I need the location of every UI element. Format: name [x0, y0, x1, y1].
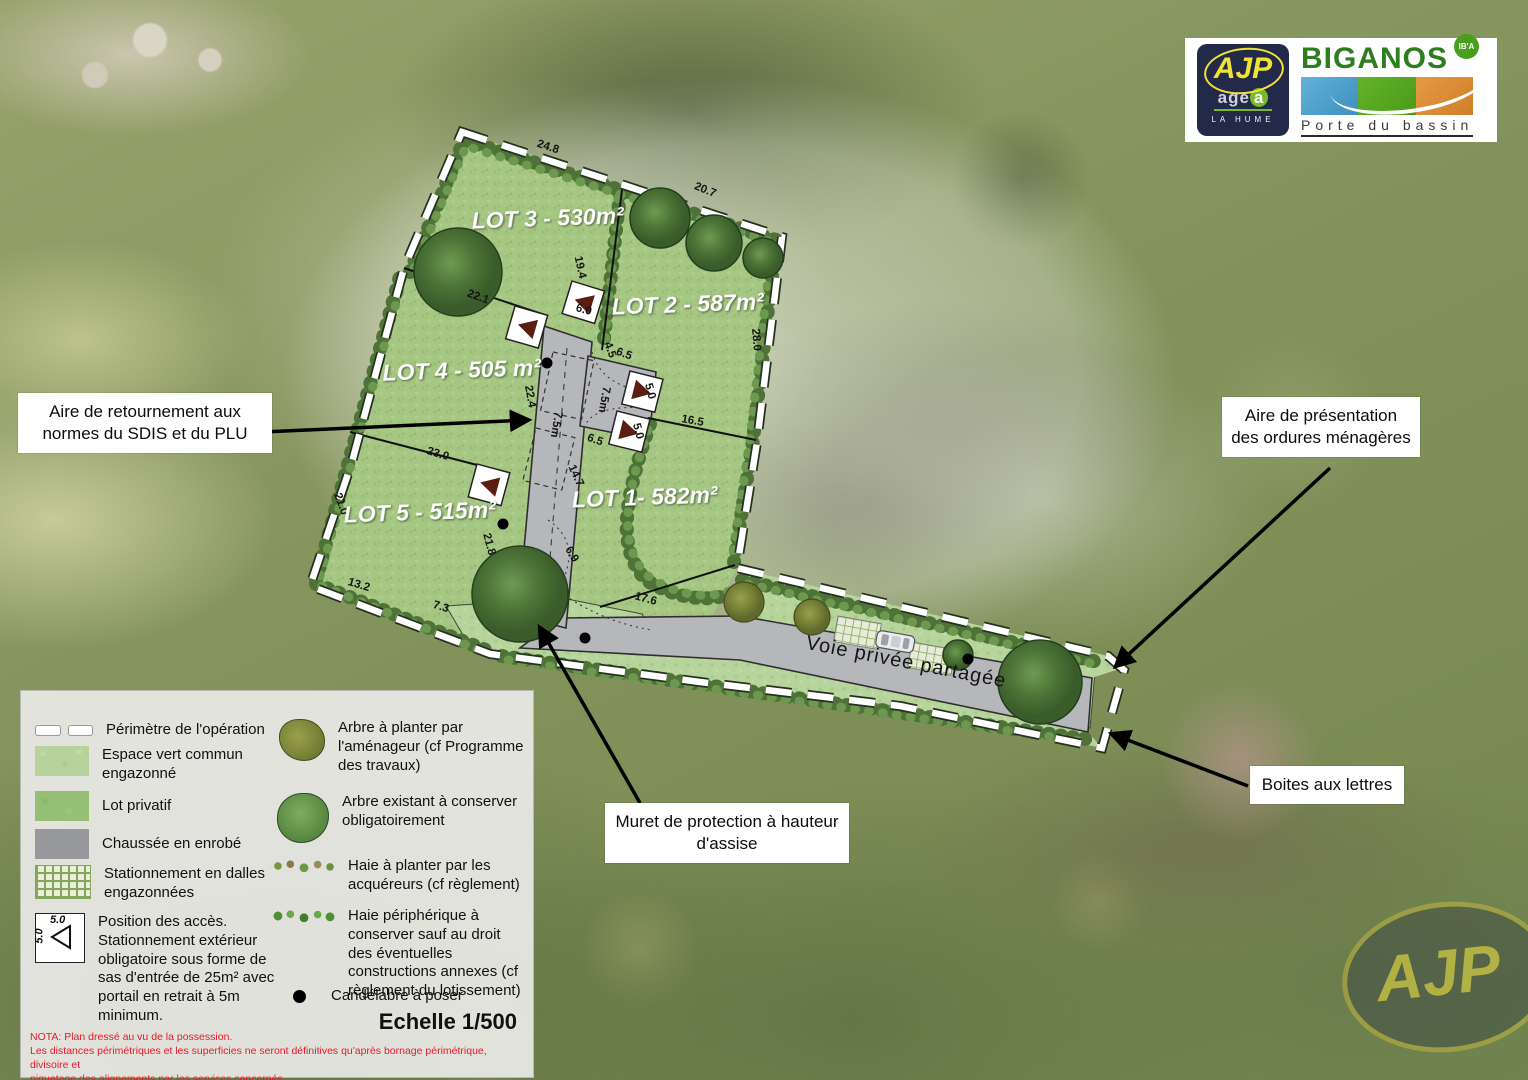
legend-label: Espace vert commun engazonné [102, 746, 270, 784]
access-position-icon: 5.0 5.0 [35, 913, 85, 963]
access-dim-top: 5.0 [50, 914, 65, 926]
legend-label: Périmètre de l'opération [106, 721, 274, 740]
ajp-logo: AJP agea LA HUME [1197, 44, 1289, 136]
biganos-logo: IB'A BIGANOS Porte du bassin [1301, 44, 1481, 137]
legend-label: Arbre existant à conserver obligatoireme… [342, 793, 524, 831]
legend-item-espace-vert: Espace vert commun engazonné [35, 746, 270, 784]
biganos-panels-icon [1301, 77, 1473, 115]
legend-label: Stationnement en dalles engazonnées [104, 865, 272, 903]
annotation-retournement: Aire de retournement aux normes du SDIS … [18, 393, 272, 453]
legend-label: Lot privatif [102, 797, 270, 816]
peripheral-hedge-icon [273, 907, 335, 925]
legend-item-arbre-existant: Arbre existant à conserver obligatoireme… [277, 793, 524, 843]
perimeter-dash-icon [35, 725, 93, 736]
legend-label: Candélabre à poser [331, 987, 511, 1006]
dimension-label: 28.0 [749, 328, 763, 351]
legend-item-perimetre: Périmètre de l'opération [35, 721, 274, 740]
legend-item-chaussee: Chaussée en enrobé [35, 829, 270, 859]
lot-label: LOT 2 - 587m² [611, 288, 765, 319]
lot-label: LOT 1- 582m² [571, 481, 719, 512]
annotation-ordures: Aire de présentation des ordures ménagèr… [1222, 397, 1420, 457]
legend-label: Arbre à planter par l'aménageur (cf Prog… [338, 719, 526, 775]
legend-label: Position des accès. Stationnement extéri… [98, 913, 286, 1026]
logo-panel: AJP agea LA HUME IB'A BIGANOS Porte du b… [1185, 38, 1497, 142]
legend-item-acces: 5.0 5.0 Position des accès. Stationnemen… [35, 913, 286, 1026]
legend-item-candelabre: Candélabre à poser [273, 987, 511, 1006]
asphalt-swatch-icon [35, 829, 89, 859]
ajp-place-text: LA HUME [1211, 115, 1274, 124]
nota-text: NOTA: Plan dressé au vu de la possession… [30, 1031, 525, 1080]
access-dim-side: 5.0 [34, 928, 46, 943]
ajp-logo-text: AJP [1214, 52, 1272, 86]
legend-box: Périmètre de l'opération Espace vert com… [20, 690, 534, 1078]
legend-item-haie-planter: Haie à planter par les acquéreurs (cf rè… [273, 857, 528, 895]
private-lot-swatch-icon [35, 791, 89, 821]
dimension-label: 24.8 [535, 138, 561, 157]
legend-item-dalles: Stationnement en dalles engazonnées [35, 865, 272, 903]
legend-label: Haie à planter par les acquéreurs (cf rè… [348, 857, 528, 895]
grass-paver-swatch-icon [35, 865, 91, 899]
hedge-to-plant-icon [273, 857, 335, 875]
legend-label: Chaussée en enrobé [102, 835, 270, 854]
lot-label: LOT 5 - 515m² [343, 496, 497, 527]
legend-item-arbre-planter: Arbre à planter par l'aménageur (cf Prog… [279, 719, 526, 775]
iba-badge-icon: IB'A [1454, 34, 1479, 59]
common-green-swatch-icon [35, 746, 89, 776]
site-plan-page: 24.8 20.7 19.4 22.1 6.0 4.5 6.5 5.0 5.0 … [0, 0, 1528, 1080]
watermark-text: AJP [1372, 930, 1504, 1017]
candelabra-dot-icon [293, 990, 306, 1003]
annotation-boites-aux-lettres: Boites aux lettres [1250, 766, 1404, 804]
biganos-tagline: Porte du bassin [1301, 117, 1473, 137]
lot-label: LOT 3 - 530m² [471, 202, 625, 233]
planted-tree-icon [279, 719, 325, 761]
dimension-label: 20.7 [692, 180, 717, 200]
existing-tree-icon [277, 793, 329, 843]
legend-item-lot-privatif: Lot privatif [35, 791, 270, 821]
annotation-muret: Muret de protection à hauteur d'assise [605, 803, 849, 863]
ajp-watermark: AJP [1342, 902, 1528, 1052]
